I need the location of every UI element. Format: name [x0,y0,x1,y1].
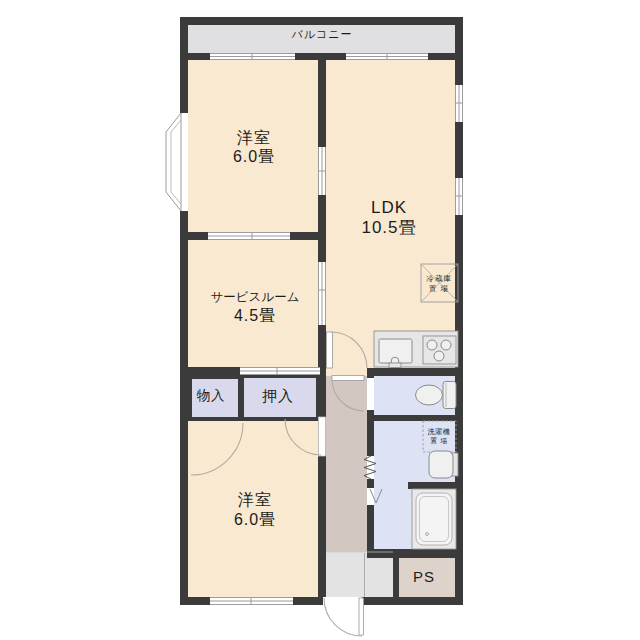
washroom-door-gap [367,456,374,479]
room-size-ldk: 10.5畳 [361,219,416,236]
refrigerator-space-label-1: 冷蔵庫 [426,275,452,283]
balcony-label: バルコニー [291,29,352,40]
monoire-label: 物入 [197,389,226,403]
washer-space-label-1: 洗濯機 [428,428,451,435]
wall-toilet-bottom [367,415,463,421]
pipe-space-label: PS [413,569,435,584]
toilet-door-leaf [332,376,364,381]
room-label-ldk: LDK [371,199,407,216]
hallway-floor [326,376,367,552]
sink-ledge [389,363,401,368]
wall-washroom-bathroom [408,482,463,489]
refrigerator-space-label-2: 置 場 [429,285,449,293]
floor-plan-drawing [0,0,640,640]
room-size-western-bottom: 6.0畳 [234,512,276,528]
kitchen-door-leaf [327,332,333,368]
wall-ps-left [393,552,399,605]
room-label-service: サービスルーム [211,291,300,304]
stove-burner-icon [434,351,444,361]
wall-outer-top [180,17,463,25]
room-label-western-top: 洋室 [237,130,271,146]
wall-kitchen-bottom [367,368,463,376]
stove-burner-icon [441,340,451,350]
oshiire-label: 押入 [262,388,294,403]
washbasin-icon [429,451,458,478]
wall-ps-top [393,552,463,558]
room-label-western-bottom: 洋室 [238,492,272,508]
western-room-top-floor [188,60,318,232]
wall-bathroom-left [367,505,374,552]
bay-window [166,113,181,211]
room-size-western-top: 6.0畳 [233,149,275,165]
floor-plan: バルコニー 洋室 6.0畳 LDK 10.5畳 サービスルーム 4.5畳 物入 … [0,0,640,640]
stove-burner-icon [427,340,437,350]
bathtub-icon [412,489,456,549]
washer-space-label-2: 置 場 [430,437,447,444]
bottom-room-door-gap [319,417,326,456]
front-door-gap [323,597,362,605]
toilet-door-gap [367,378,374,410]
wall-outer-left [180,17,188,605]
front-door-leaf [359,598,364,635]
room-size-service: 4.5畳 [234,308,276,324]
wall-washroom-left-lower [367,479,374,489]
entry-floor [326,552,393,597]
wall-washroom-left [367,421,374,456]
